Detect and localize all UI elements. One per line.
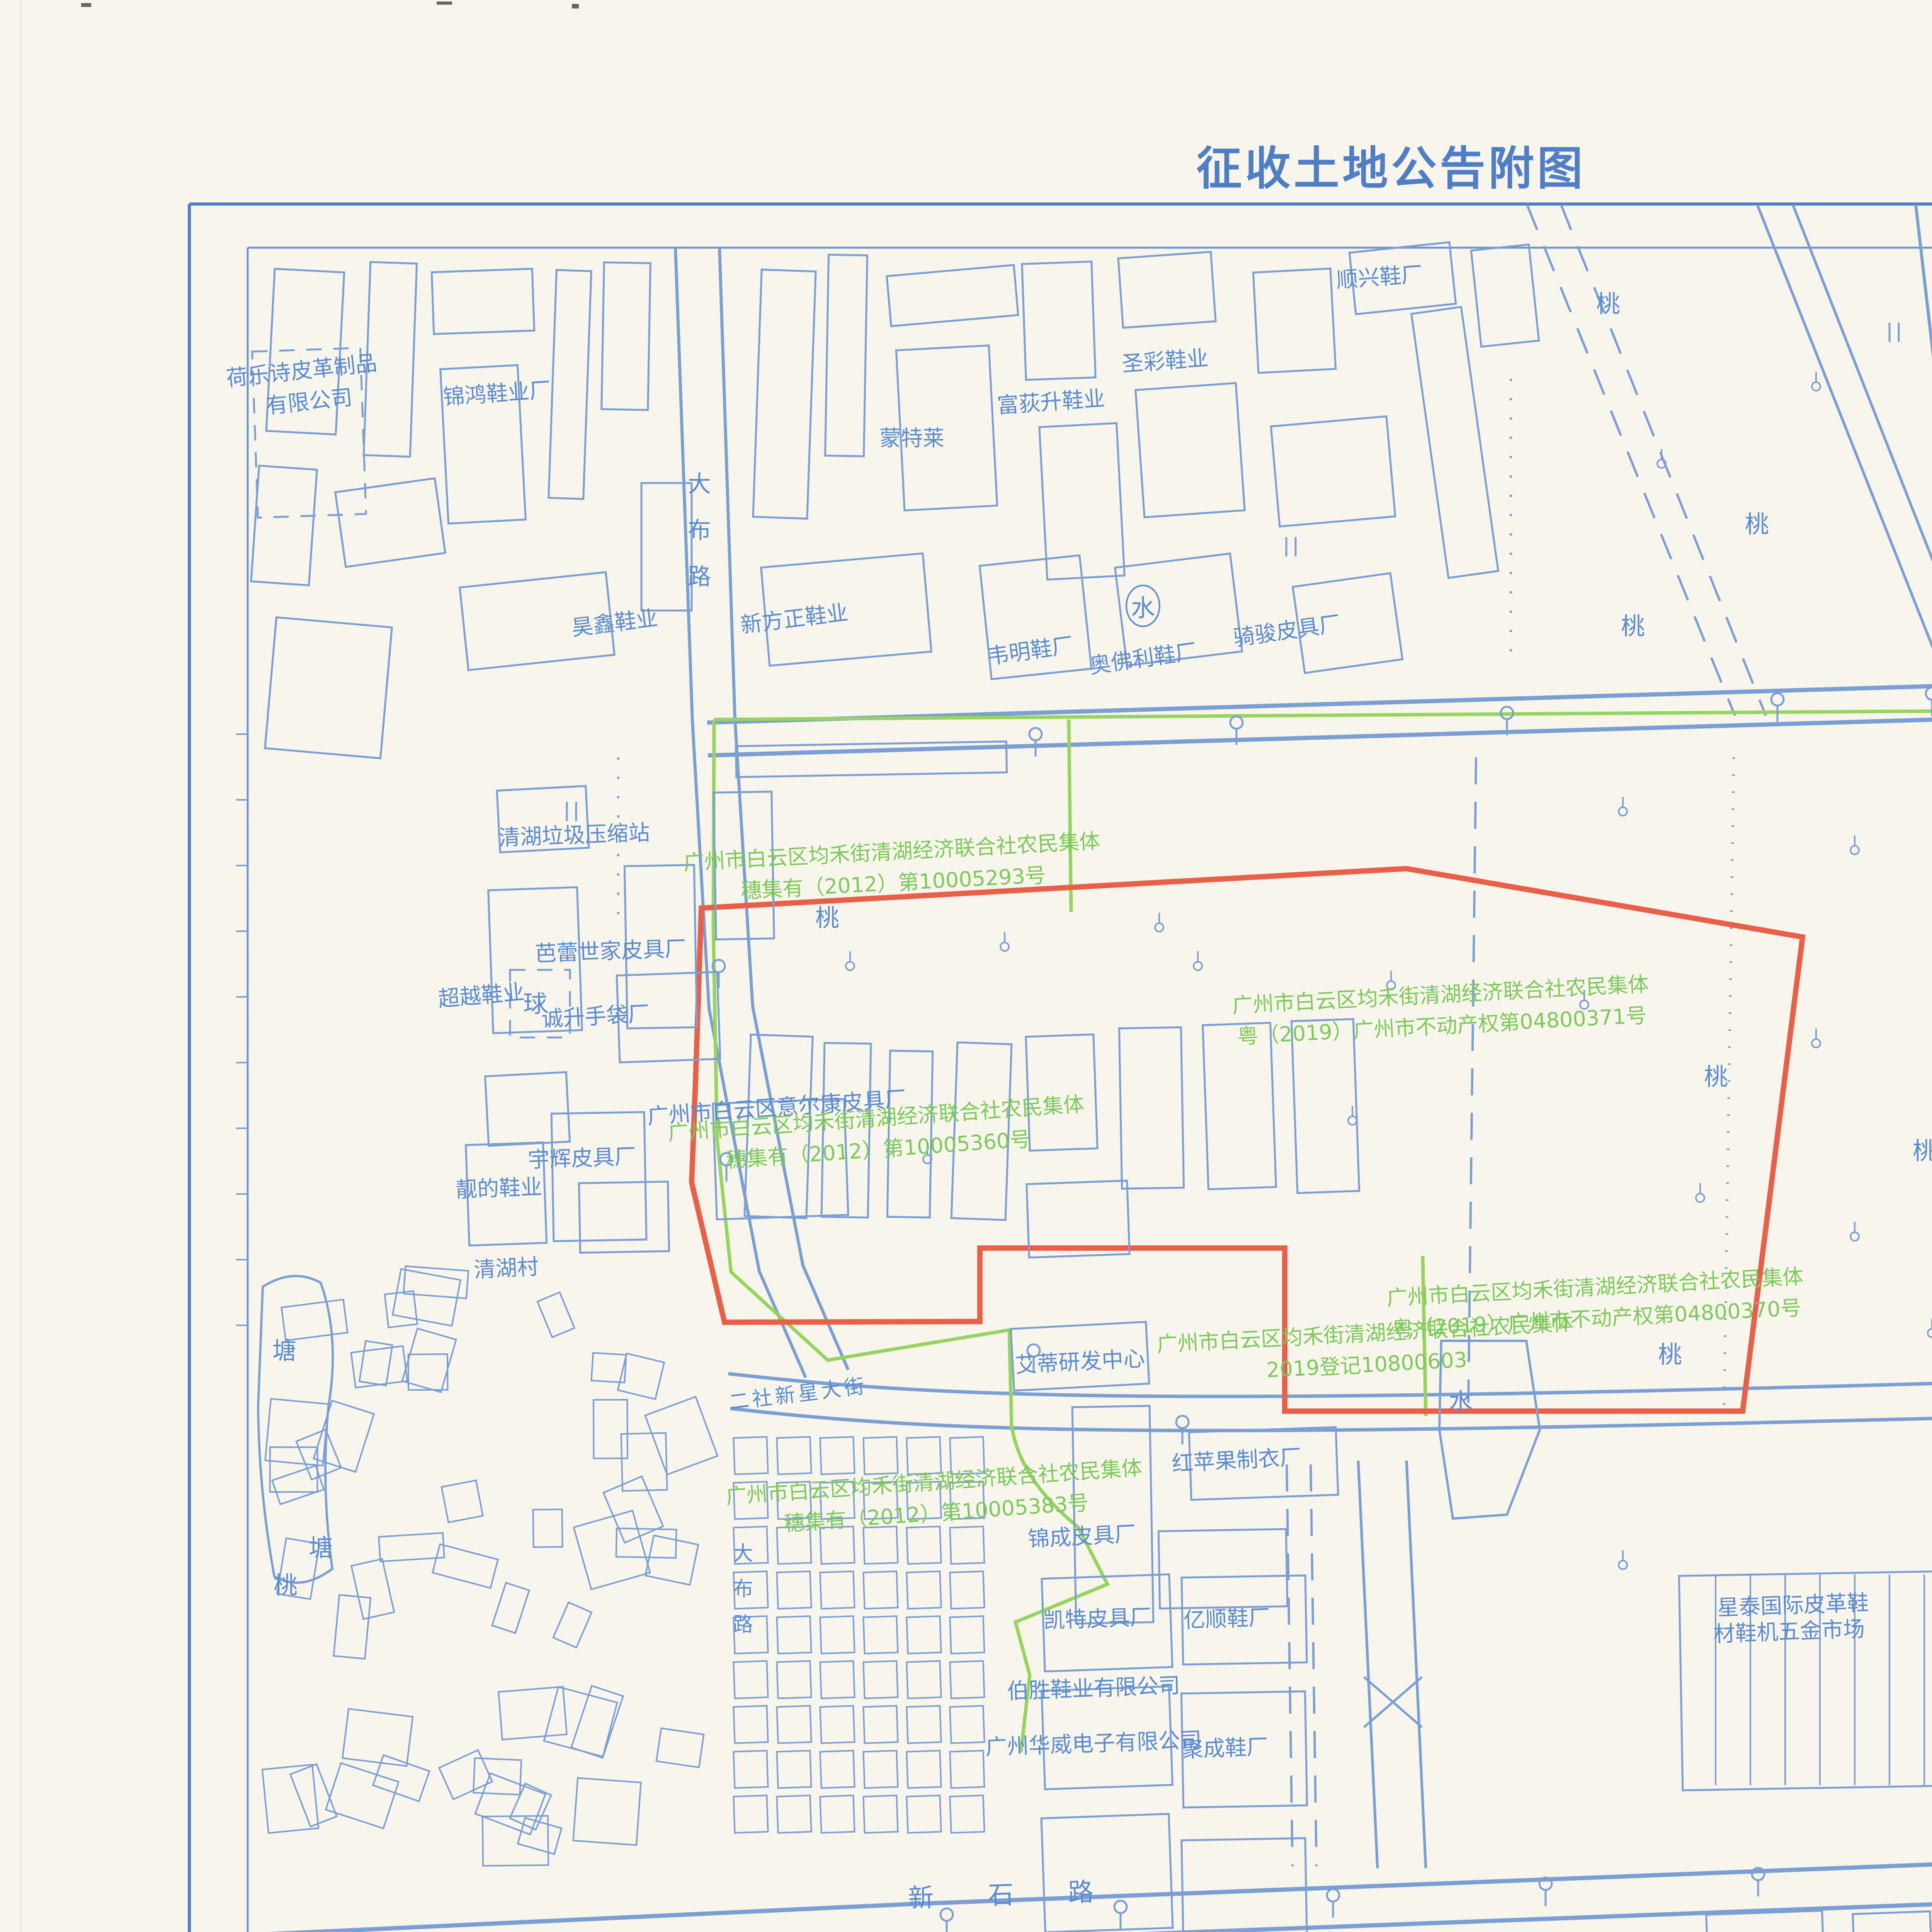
village-house [492,1583,529,1633]
village-house [777,1437,811,1475]
orchard-symbol [1696,1194,1704,1202]
terrain-label: 桃 [1704,1057,1728,1092]
village-house [342,1709,413,1766]
village-house [518,1818,561,1854]
factory-label: 亿顺鞋厂 [1183,1600,1271,1634]
village-house [950,1661,984,1699]
village-house [863,1616,898,1654]
road-label: 新 石 路 [908,1871,1117,1915]
village-house [475,1773,546,1834]
village-house [334,1595,371,1659]
factory-label: 清湖村 [473,1249,539,1284]
factory-label: 芭蕾世家皮具厂 [534,931,687,968]
orchard-symbol [1348,1116,1357,1125]
green-boundary [717,1140,1107,1752]
village-house [574,1510,650,1589]
village-house [777,1616,811,1654]
village-house [733,1796,768,1833]
building-outline [1412,307,1498,578]
factory-label: 聚成鞋厂 [1181,1730,1269,1764]
village-house [863,1437,898,1475]
village-house [573,1778,641,1845]
building-outline [551,1112,646,1241]
village-house [950,1706,984,1743]
terrain-label: 桃 [1913,1131,1932,1166]
building-outline [1182,1838,1307,1932]
orchard-symbol [1850,846,1859,854]
survey-point [1327,1889,1339,1901]
village-house [296,1430,341,1480]
building-outline [251,466,317,585]
road-line [1311,1464,1316,1866]
factory-label: 锦成皮具厂 [1027,1516,1137,1553]
terrain-label: 桃 [274,1566,298,1600]
village-house [537,1292,575,1337]
building-outline [1039,423,1124,580]
village-house [432,1544,498,1588]
road-label: 大布路 [681,471,714,611]
road-label: 大布路 [727,1543,756,1649]
terrain-label: 塘 [272,1331,296,1366]
village-house [314,1401,374,1472]
terrain-label: 桃 [1658,1335,1682,1370]
village-house [820,1437,854,1475]
crossing-mark [1364,1677,1422,1727]
village-house [906,1571,941,1609]
road-line [1793,205,1932,716]
village-house [439,1750,492,1799]
factory-label: 蒙特莱 [879,421,944,452]
building-outline [1136,383,1245,517]
building-outline [887,265,1018,326]
terrain-label: 球 [523,984,547,1019]
building-outline [579,1182,669,1253]
village-house [906,1706,941,1743]
terrain-label: 塘 [309,1528,333,1563]
village-house [950,1616,984,1654]
village-house [820,1751,854,1788]
building-outline [1118,252,1216,328]
factory-label: 靓的鞋业 [455,1170,543,1204]
survey-point [1176,1416,1189,1428]
factory-label: 清湖垃圾压缩站 [498,815,651,852]
building-outline [265,617,392,759]
village-house [533,1509,562,1547]
orchard-symbol [1928,1329,1932,1337]
village-house [733,1751,768,1788]
orchard-symbol [1194,962,1202,970]
paddy-mark [1889,323,1899,342]
village-house [906,1527,941,1564]
building-outline [1271,416,1395,526]
orchard-symbol [1812,382,1820,391]
building-outline [1706,1911,1826,1932]
building-outline [1471,245,1539,347]
village-house [272,1466,324,1504]
village-house [950,1751,984,1788]
village-house [820,1616,854,1654]
factory-label: 伯胜鞋业有限公司 [1007,1668,1181,1706]
terrain-label: 水 [1449,1382,1473,1417]
building-outline [825,255,867,456]
village-house [379,1533,444,1561]
orchard-symbol [1619,807,1627,816]
building-outline [1253,269,1335,373]
village-house [906,1751,941,1788]
factory-label: 圣彩鞋业 [1121,341,1209,378]
scan-page: 征收土地公告附图 荷乐诗皮革制品有限公司锦鸿鞋业厂蒙特莱圣彩鞋业富荻升鞋业顺兴鞋… [0,0,1932,1932]
village-house [733,1437,768,1475]
village-house [863,1706,898,1743]
building-outline [549,270,592,499]
factory-label: 诚升手袋厂 [541,996,650,1033]
village-house [777,1571,811,1609]
village-house [777,1661,811,1699]
village-house [604,1476,663,1543]
factory-label: 顺兴鞋厂 [1335,257,1423,294]
survey-point [1029,728,1042,740]
factory-label: 材鞋机五金市场 [1713,1612,1866,1648]
orchard-symbol [1812,1039,1820,1048]
building-outline [335,478,446,567]
village-house [863,1571,898,1609]
village-house [442,1480,483,1522]
orchard-symbol [1850,1232,1859,1241]
terrain-label: 水 [1126,585,1160,627]
terrain-label: 桃 [815,898,839,933]
survey-point [1230,716,1243,729]
village-house [777,1706,811,1743]
building-outline [1119,1027,1184,1189]
village-house [863,1751,898,1788]
village-house [270,1447,318,1492]
village-house [656,1728,704,1767]
village-house [863,1796,898,1833]
orchard-symbol [1155,923,1163,932]
orchard-symbol [1619,1561,1627,1569]
road-line [719,248,848,1370]
village-house [384,1291,417,1327]
building-outline [602,262,651,410]
factory-label: 宇辉皮具厂 [527,1139,637,1174]
village-house [645,1536,698,1585]
building-outline [1022,262,1095,380]
village-house [777,1751,811,1788]
survey-point [1771,693,1784,706]
village-house [326,1763,398,1828]
village-house [733,1661,768,1699]
orchard-symbol [846,962,854,970]
terrain-label: 桃 [1621,607,1645,641]
village-house [906,1661,941,1699]
road-line [1406,1461,1426,1868]
village-house [820,1706,854,1743]
building-outline [1853,1912,1932,1932]
village-house [820,1796,854,1833]
terrain-label: 桃 [1745,505,1769,539]
paddy-mark [1286,537,1296,556]
building-outline [1158,1529,1287,1609]
village-house [906,1616,941,1654]
village-house [594,1400,628,1458]
orchard-symbol [1000,942,1009,951]
survey-point [1926,687,1932,700]
building-outline [432,269,534,334]
road-line [1358,1461,1378,1868]
village-house [777,1796,811,1833]
village-house [906,1796,941,1833]
village-house [950,1796,984,1833]
village-house [351,1559,394,1619]
terrain-label: 桃 [1596,284,1620,319]
road-line [1757,205,1932,716]
map-linework [0,0,1932,1932]
building-outline [485,1072,570,1146]
village-house [373,1755,429,1801]
factory-label: 凯特皮具厂 [1043,1600,1152,1635]
village-house [863,1661,898,1699]
village-house [950,1527,984,1564]
village-house [820,1571,854,1609]
village-house [553,1602,592,1648]
village-house [950,1571,984,1609]
village-house [645,1397,718,1475]
village-house [733,1706,768,1743]
building-outline [753,270,816,519]
village-house [820,1661,854,1699]
